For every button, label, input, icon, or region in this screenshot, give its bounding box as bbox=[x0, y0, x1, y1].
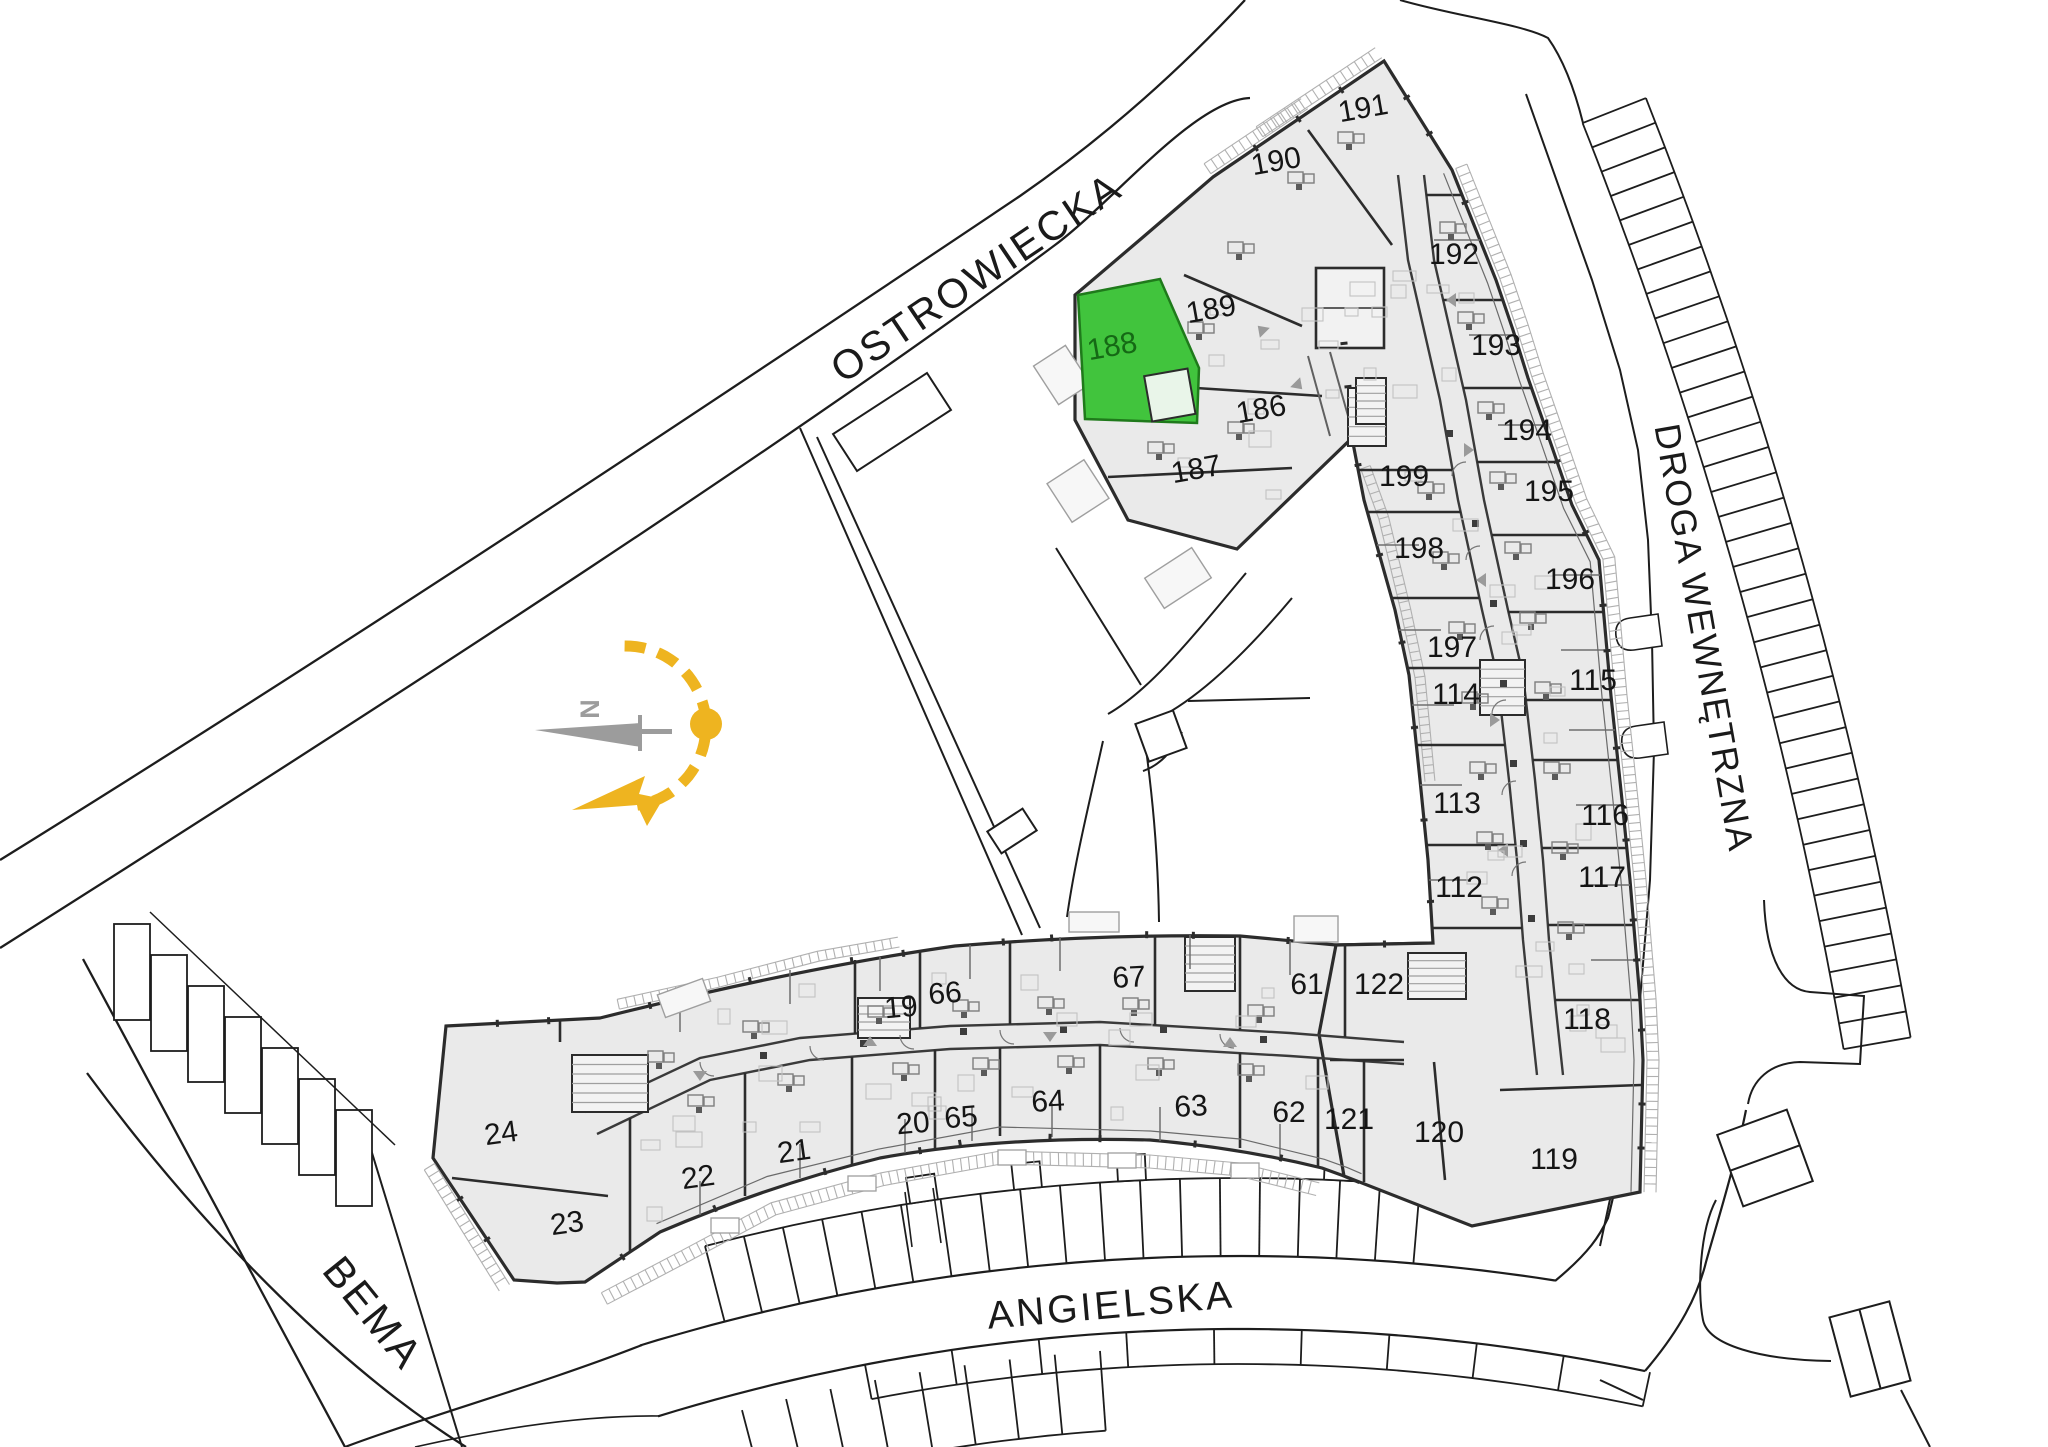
svg-text:21: 21 bbox=[775, 1133, 813, 1170]
svg-text:193: 193 bbox=[1471, 329, 1521, 362]
svg-text:65: 65 bbox=[943, 1100, 979, 1136]
svg-text:67: 67 bbox=[1111, 960, 1146, 995]
svg-text:62: 62 bbox=[1272, 1096, 1305, 1129]
svg-text:121: 121 bbox=[1324, 1103, 1374, 1136]
svg-text:64: 64 bbox=[1030, 1084, 1065, 1119]
svg-text:63: 63 bbox=[1173, 1089, 1208, 1124]
svg-text:195: 195 bbox=[1524, 475, 1574, 508]
svg-text:19: 19 bbox=[883, 990, 919, 1026]
svg-text:119: 119 bbox=[1530, 1143, 1578, 1176]
svg-text:199: 199 bbox=[1379, 460, 1429, 493]
svg-text:192: 192 bbox=[1429, 238, 1479, 271]
svg-text:114: 114 bbox=[1432, 678, 1480, 711]
svg-text:118: 118 bbox=[1563, 1003, 1611, 1036]
svg-text:116: 116 bbox=[1581, 799, 1629, 832]
svg-text:23: 23 bbox=[548, 1205, 586, 1242]
svg-text:117: 117 bbox=[1578, 861, 1626, 894]
svg-text:122: 122 bbox=[1354, 968, 1404, 1001]
svg-text:113: 113 bbox=[1433, 787, 1481, 820]
svg-text:198: 198 bbox=[1394, 532, 1444, 565]
svg-text:194: 194 bbox=[1502, 414, 1552, 447]
svg-text:66: 66 bbox=[927, 976, 963, 1012]
svg-text:N: N bbox=[575, 699, 605, 719]
svg-text:22: 22 bbox=[679, 1159, 717, 1196]
svg-text:196: 196 bbox=[1545, 563, 1595, 596]
svg-text:115: 115 bbox=[1569, 664, 1617, 697]
svg-text:61: 61 bbox=[1290, 968, 1323, 1001]
svg-text:24: 24 bbox=[482, 1115, 520, 1152]
svg-text:197: 197 bbox=[1427, 631, 1477, 664]
svg-text:120: 120 bbox=[1414, 1116, 1464, 1149]
svg-text:112: 112 bbox=[1435, 871, 1483, 904]
svg-text:20: 20 bbox=[895, 1106, 931, 1142]
